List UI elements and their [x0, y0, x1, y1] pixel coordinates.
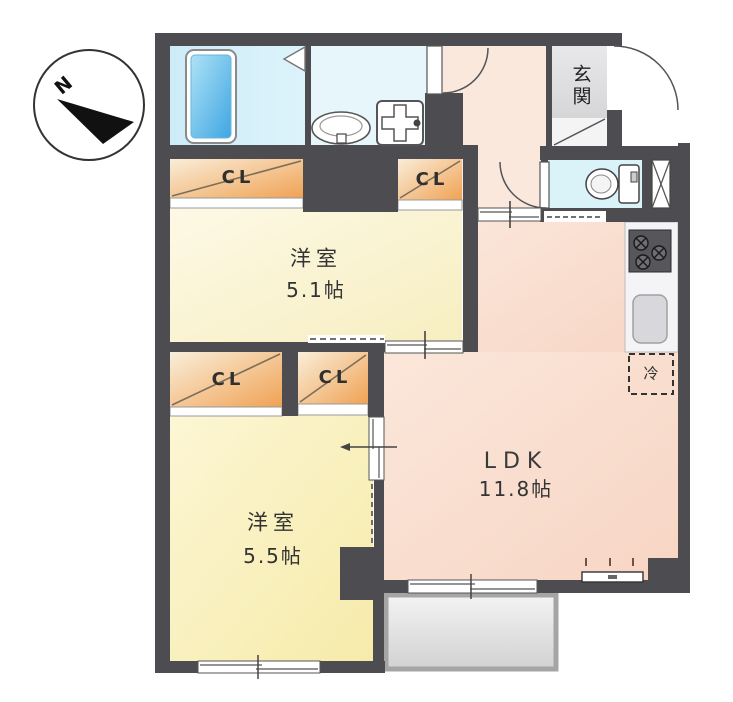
washing-machine-pan: [377, 101, 423, 145]
closet-3-track: [170, 407, 282, 416]
western-room1-floor: [170, 208, 462, 342]
wall-bottom-b: [320, 661, 385, 673]
western-room2-floor: [170, 415, 373, 661]
western-room2-size: 5.5帖: [243, 546, 303, 566]
wall-washroom-right: [425, 93, 463, 159]
wall-room1-bottom: [155, 342, 385, 352]
closet-4-label: CL: [319, 369, 352, 387]
kitchen-sink: [633, 295, 667, 343]
wall-room2-right-c: [373, 600, 384, 661]
closet-1-label: CL: [222, 169, 255, 187]
western-room1-size: 5.1帖: [286, 280, 346, 300]
floor-plan: N CL CL CL CL 玄関 洋室 5.1帖 洋室 5.5帖 LDK 11.…: [0, 0, 733, 702]
closet-1-track: [170, 198, 303, 208]
kitchen-opening: [544, 211, 606, 222]
wall-center-block: [303, 145, 398, 212]
wall-top: [155, 33, 622, 46]
western-room2-name: 洋室: [247, 513, 299, 534]
wall-bottom-a: [155, 661, 198, 673]
wall-ps-left: [642, 160, 652, 208]
balcony-deck: [386, 595, 556, 669]
wall-ps-right: [670, 160, 678, 208]
wall-closet-divider: [282, 342, 298, 416]
compass: [34, 50, 144, 160]
wall-room1-right: [463, 145, 478, 352]
toilet-door-leaf: [540, 162, 549, 208]
compass-circle: [34, 50, 144, 160]
ldk-size: 11.8帖: [479, 479, 554, 499]
wall-entrance-bottom: [540, 146, 690, 160]
ldk-name: LDK: [484, 451, 549, 473]
floor-plan-drawing: [0, 0, 733, 702]
closet-4-track: [298, 404, 368, 415]
entrance-label: 玄関: [571, 64, 590, 108]
refrigerator-label: 冷: [643, 367, 658, 382]
balcony: [386, 595, 556, 669]
entrance-door-arc: [614, 46, 678, 110]
wall-room2-right-b: [374, 480, 384, 547]
closet-2-track: [398, 200, 462, 210]
western-room1-name: 洋室: [290, 249, 342, 270]
pipe-space: [652, 160, 670, 208]
washbasin: [312, 112, 370, 144]
wall-room2-right-a: [368, 342, 384, 417]
wall-entrance-left-thin: [546, 46, 552, 147]
wall-room2-corner: [340, 547, 384, 600]
bathtub: [186, 50, 236, 143]
wall-left: [155, 33, 170, 673]
closet-3-label: CL: [212, 371, 245, 389]
washroom-door-leaf: [427, 46, 442, 94]
wall-ldk-bottom-a: [384, 580, 408, 593]
wall-bath-divider: [305, 46, 311, 147]
closet-2-label: CL: [416, 171, 449, 189]
